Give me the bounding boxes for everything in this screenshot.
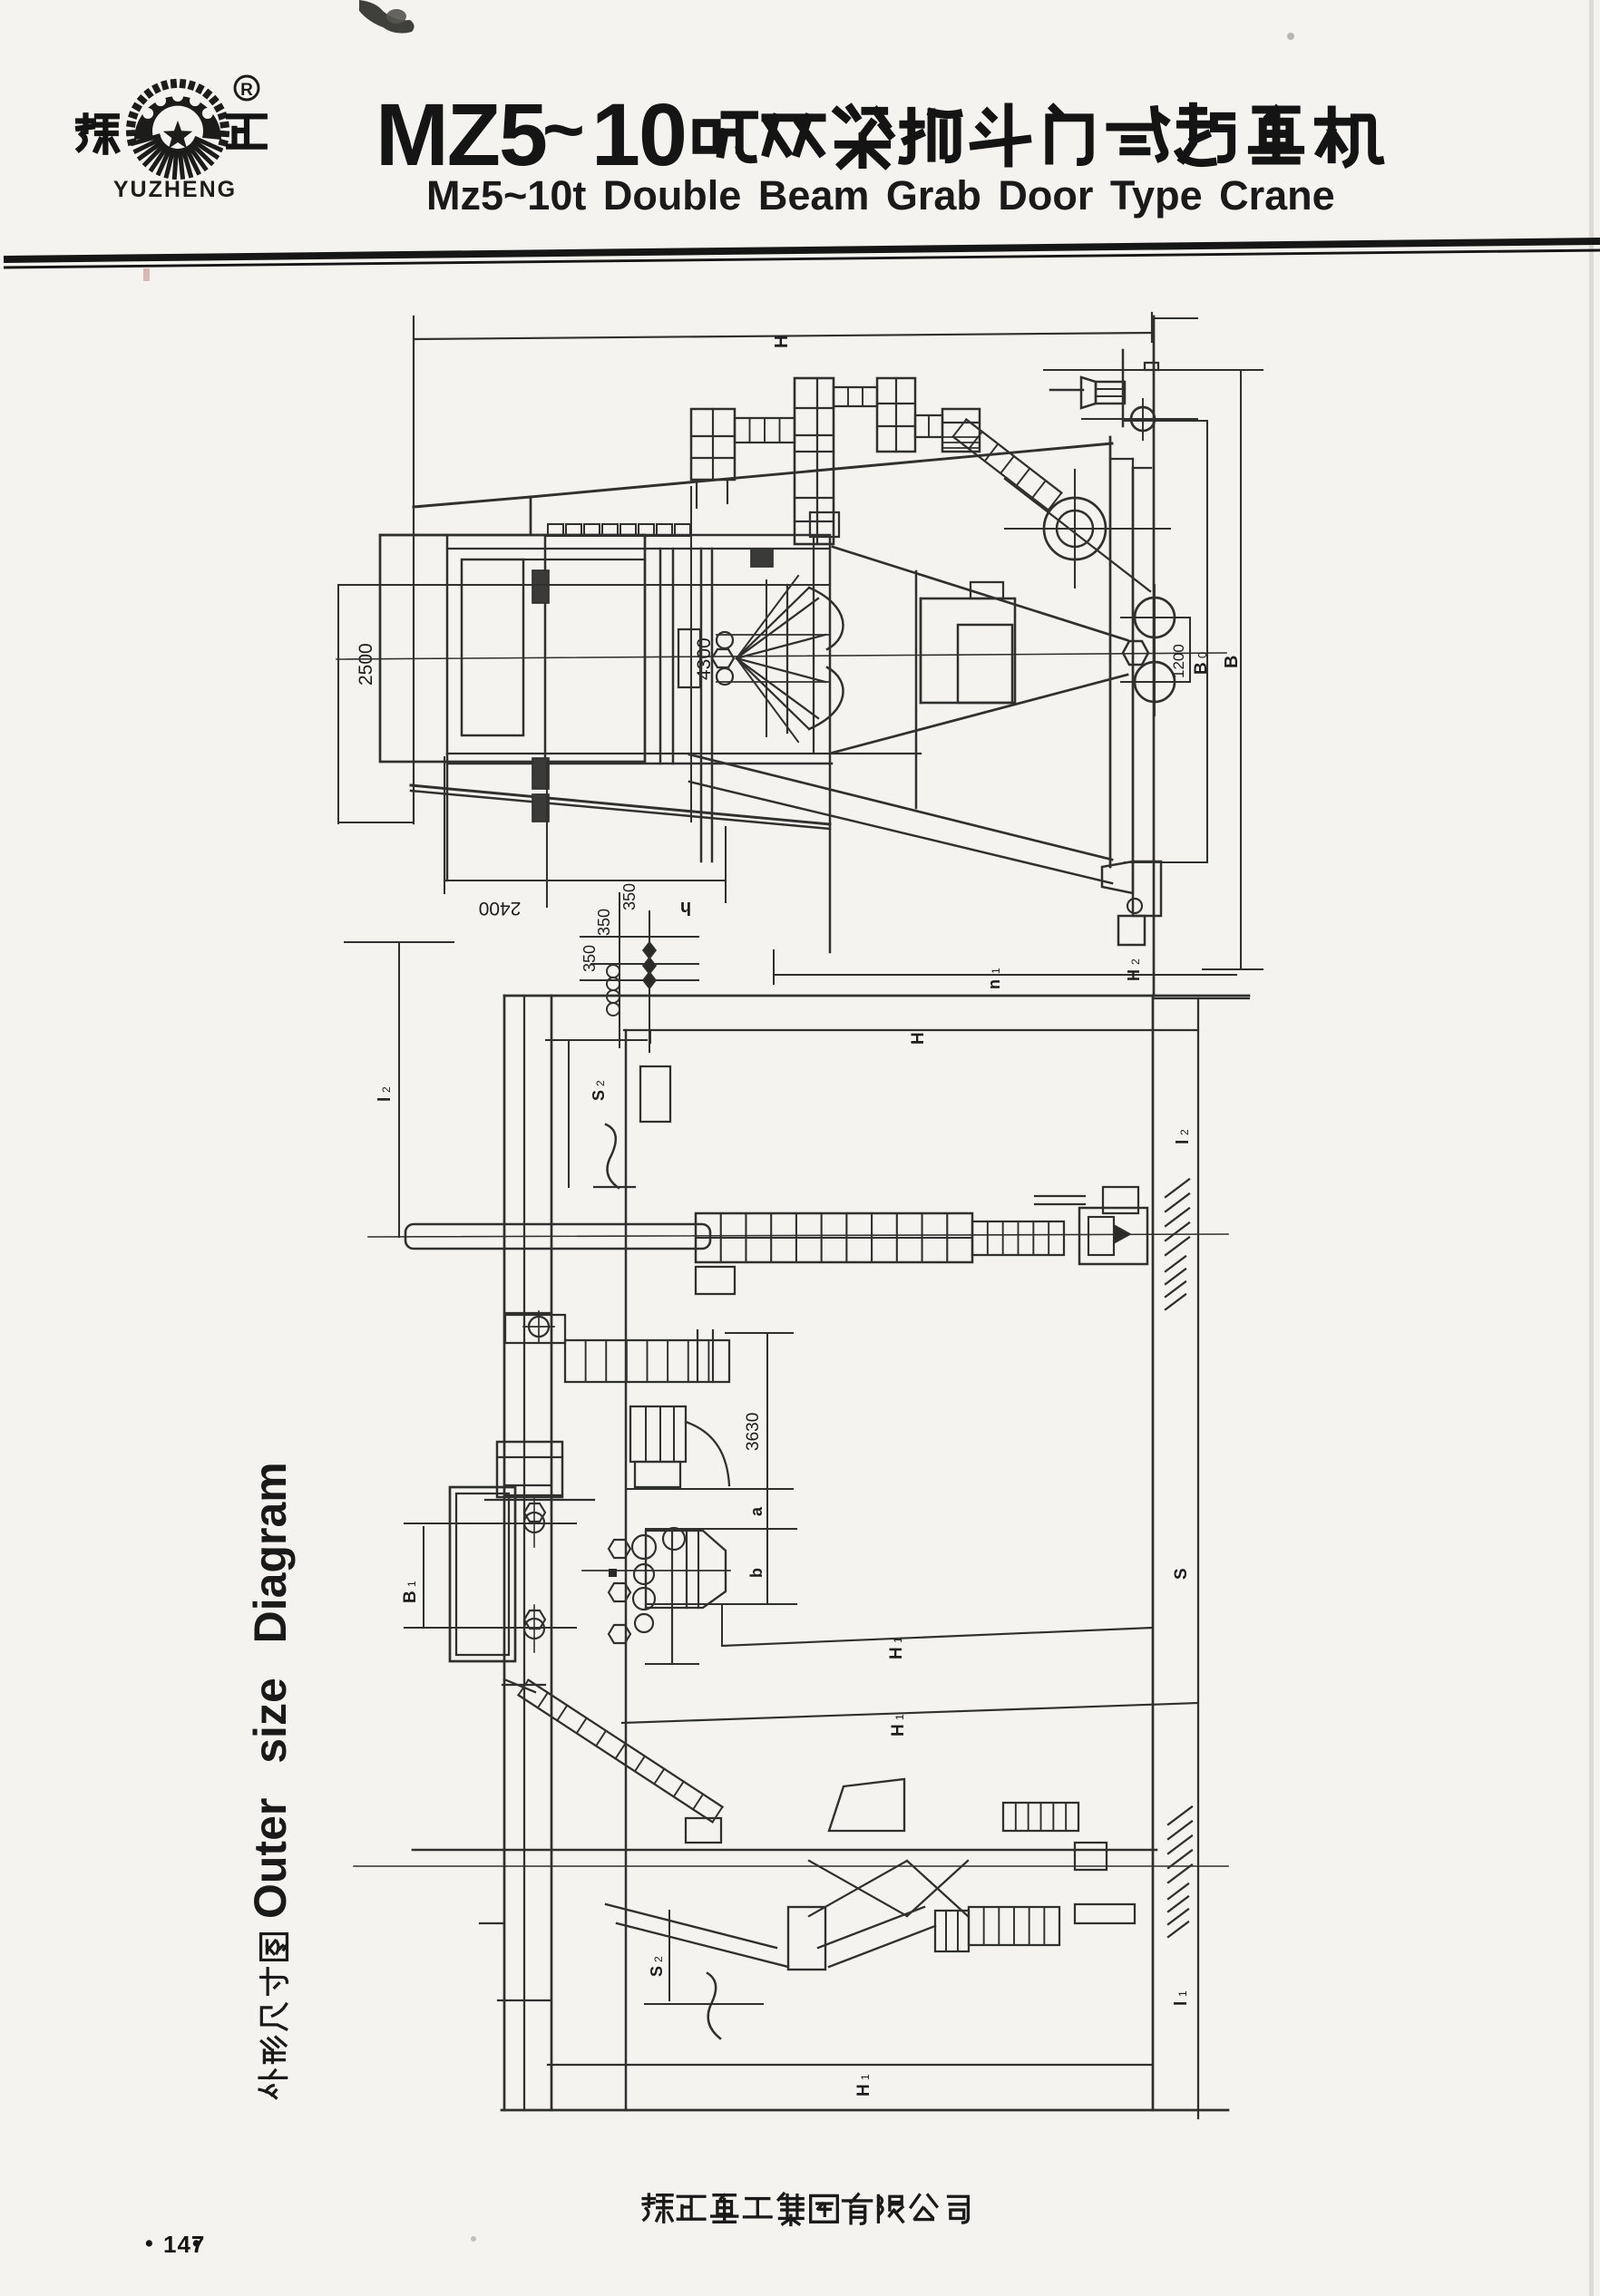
svg-text:2: 2 [652,1956,665,1962]
svg-text:•: • [192,2231,200,2256]
svg-text:2: 2 [380,1086,393,1093]
svg-text:Outer size Diagram: Outer size Diagram [245,1462,296,1919]
svg-text:S: S [590,1090,608,1101]
svg-text:H: H [889,1724,908,1737]
svg-text:H: H [909,1032,928,1045]
svg-text:•: • [145,2231,153,2256]
svg-text:10: 10 [591,85,686,184]
svg-text:Mz5~10t Double Beam Grab Door: Mz5~10t Double Beam Grab Door Type Crane [426,172,1335,219]
svg-text:1: 1 [1176,1990,1189,1997]
svg-text:B: B [401,1591,420,1603]
svg-text:l: l [376,1097,395,1102]
svg-text:350: 350 [620,883,639,910]
svg-text:~: ~ [542,89,585,170]
svg-text:b: b [747,1568,766,1578]
svg-text:350: 350 [580,945,599,972]
svg-text:1: 1 [405,1581,418,1587]
svg-text:MZ5: MZ5 [376,85,546,184]
svg-text:S: S [648,1966,666,1977]
svg-text:l: l [1174,1140,1193,1144]
svg-text:0: 0 [1195,652,1209,658]
svg-text:l: l [1172,2001,1191,2006]
svg-text:350: 350 [595,909,613,936]
svg-text:a: a [747,1506,766,1516]
svg-text:1: 1 [892,1637,904,1643]
svg-text:1: 1 [893,1714,906,1720]
svg-text:B: B [1192,662,1211,675]
svg-text:1: 1 [859,2074,872,2080]
svg-text:n: n [985,979,1003,989]
svg-text:2: 2 [1129,958,1142,965]
svg-text:H: H [1125,969,1143,981]
svg-text:2: 2 [1178,1129,1191,1135]
svg-text:H: H [887,1647,906,1659]
svg-text:3630: 3630 [744,1413,763,1451]
svg-text:h: h [680,898,691,918]
svg-text:B: B [1222,656,1242,668]
svg-text:H: H [772,336,792,348]
svg-text:1200: 1200 [1170,644,1187,678]
svg-text:R: R [240,81,253,100]
svg-text:1: 1 [990,968,1002,974]
svg-text:S: S [1172,1568,1191,1580]
svg-text:YUZHENG: YUZHENG [113,177,237,202]
svg-text:H: H [854,2084,873,2097]
svg-text:2500: 2500 [356,643,376,686]
svg-text:2400: 2400 [479,898,522,919]
svg-text:2: 2 [594,1080,607,1086]
